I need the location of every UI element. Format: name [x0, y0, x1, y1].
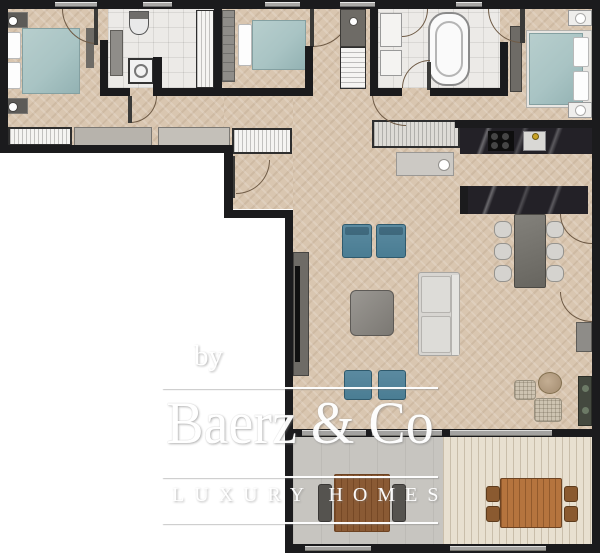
pillow [6, 62, 21, 89]
outdoor-chair [564, 486, 578, 502]
pillow [6, 32, 21, 59]
door-leaf [520, 9, 525, 43]
pouf [344, 370, 372, 400]
pillow [238, 24, 252, 66]
sliding-glass-door [302, 430, 366, 436]
door-leaf [128, 96, 132, 123]
sofa-cushion [421, 316, 451, 353]
vanity [110, 30, 123, 76]
outdoor-chair [486, 506, 500, 522]
wall-segment [224, 210, 293, 218]
wicker-chair [534, 398, 562, 422]
bathroom-cabinet [380, 50, 402, 76]
console-table [372, 120, 460, 148]
washer-drum [134, 64, 148, 78]
armchair-back [345, 227, 369, 235]
window [265, 2, 300, 7]
door-leaf [427, 62, 431, 90]
bathtub-icon [428, 12, 470, 86]
floor-plan: by Baerz & Co LUXURY HOMES [0, 0, 600, 553]
outdoor-chair [564, 506, 578, 522]
dining-chair [546, 243, 564, 260]
wall-segment [430, 88, 508, 96]
double-bed [526, 30, 592, 108]
stove-icon [488, 131, 514, 151]
burner-icon [502, 142, 509, 149]
outdoor-chair [486, 486, 500, 502]
pouf [378, 370, 406, 400]
watermark-prefix: by [194, 340, 223, 373]
lamp-icon [9, 17, 17, 25]
lamp-icon [576, 106, 585, 115]
wall-segment [592, 0, 600, 553]
wall-segment [305, 46, 313, 96]
bed-blanket [252, 20, 306, 70]
sofa-cushion [421, 276, 451, 313]
armchair-back [379, 227, 403, 235]
wall-segment [214, 88, 313, 96]
door-leaf [94, 9, 98, 45]
planter [578, 376, 592, 426]
burner-icon [502, 133, 509, 140]
burner-icon [491, 142, 498, 149]
wall-segment [153, 57, 162, 96]
bathtub-basin [435, 21, 463, 77]
toilet-icon [129, 11, 149, 35]
terrace-railing-glass [305, 546, 371, 551]
armchair [376, 224, 406, 258]
terrace-chair [318, 484, 332, 522]
pillow [573, 71, 589, 101]
sofa [418, 272, 460, 356]
double-bed [4, 28, 80, 94]
window [340, 2, 375, 7]
dining-chair [494, 243, 512, 260]
tv-icon [295, 266, 300, 362]
washing-machine-icon [128, 58, 154, 84]
knob-icon [350, 18, 357, 25]
lamp-icon [576, 14, 585, 23]
wall-segment [0, 145, 232, 153]
wall-segment [370, 88, 402, 96]
sideboard [396, 152, 454, 176]
plant-icon [582, 407, 589, 414]
bathroom-cabinet [380, 13, 402, 47]
wall-segment [285, 210, 293, 437]
wall-segment [460, 186, 468, 214]
wall-segment [500, 42, 508, 96]
dining-chair [494, 221, 512, 238]
toilet-tank [130, 12, 148, 19]
nightstand [568, 10, 592, 26]
terrace-table [334, 474, 390, 532]
wall-segment [455, 120, 592, 128]
burner-icon [491, 133, 498, 140]
armchair [342, 224, 372, 258]
sliding-glass-door [372, 430, 442, 436]
wall-segment [370, 0, 378, 96]
closet [74, 127, 152, 146]
hall-closet [340, 9, 366, 47]
sliding-glass-door [450, 430, 552, 436]
door-leaf [310, 9, 314, 47]
lamp-icon [9, 103, 17, 111]
wicker-chair [514, 380, 536, 400]
kitchen-sink-icon [523, 131, 546, 151]
sofa-back [451, 275, 459, 355]
single-bed [236, 20, 306, 70]
kitchen-island [468, 186, 588, 214]
wall-segment [156, 88, 222, 96]
faucet-icon [533, 134, 538, 139]
window [55, 2, 97, 7]
dining-chair [546, 265, 564, 282]
lamp-icon [439, 160, 449, 170]
terrace-railing-glass [450, 546, 546, 551]
bed-blanket [22, 28, 80, 94]
closet [196, 10, 214, 88]
wall-segment [214, 0, 222, 96]
pillow [573, 37, 589, 67]
outdoor-dining-table [500, 478, 562, 528]
entrance-cabinet [232, 128, 292, 154]
cabinet [576, 322, 592, 352]
wardrobe [222, 10, 235, 82]
closet [8, 127, 72, 146]
dining-table [514, 214, 546, 288]
wall-segment [0, 0, 8, 153]
terrace-chair [392, 484, 406, 522]
hall-shelves [340, 47, 366, 89]
dining-chair [494, 265, 512, 282]
closet [158, 127, 230, 146]
window [456, 2, 482, 7]
wall-segment [285, 437, 293, 553]
wall-segment [100, 88, 130, 96]
nightstand [568, 102, 592, 118]
wall-segment [224, 145, 233, 218]
plant-icon [582, 385, 589, 392]
coffee-table [350, 290, 394, 336]
window [143, 2, 172, 7]
round-pouf [538, 372, 562, 394]
